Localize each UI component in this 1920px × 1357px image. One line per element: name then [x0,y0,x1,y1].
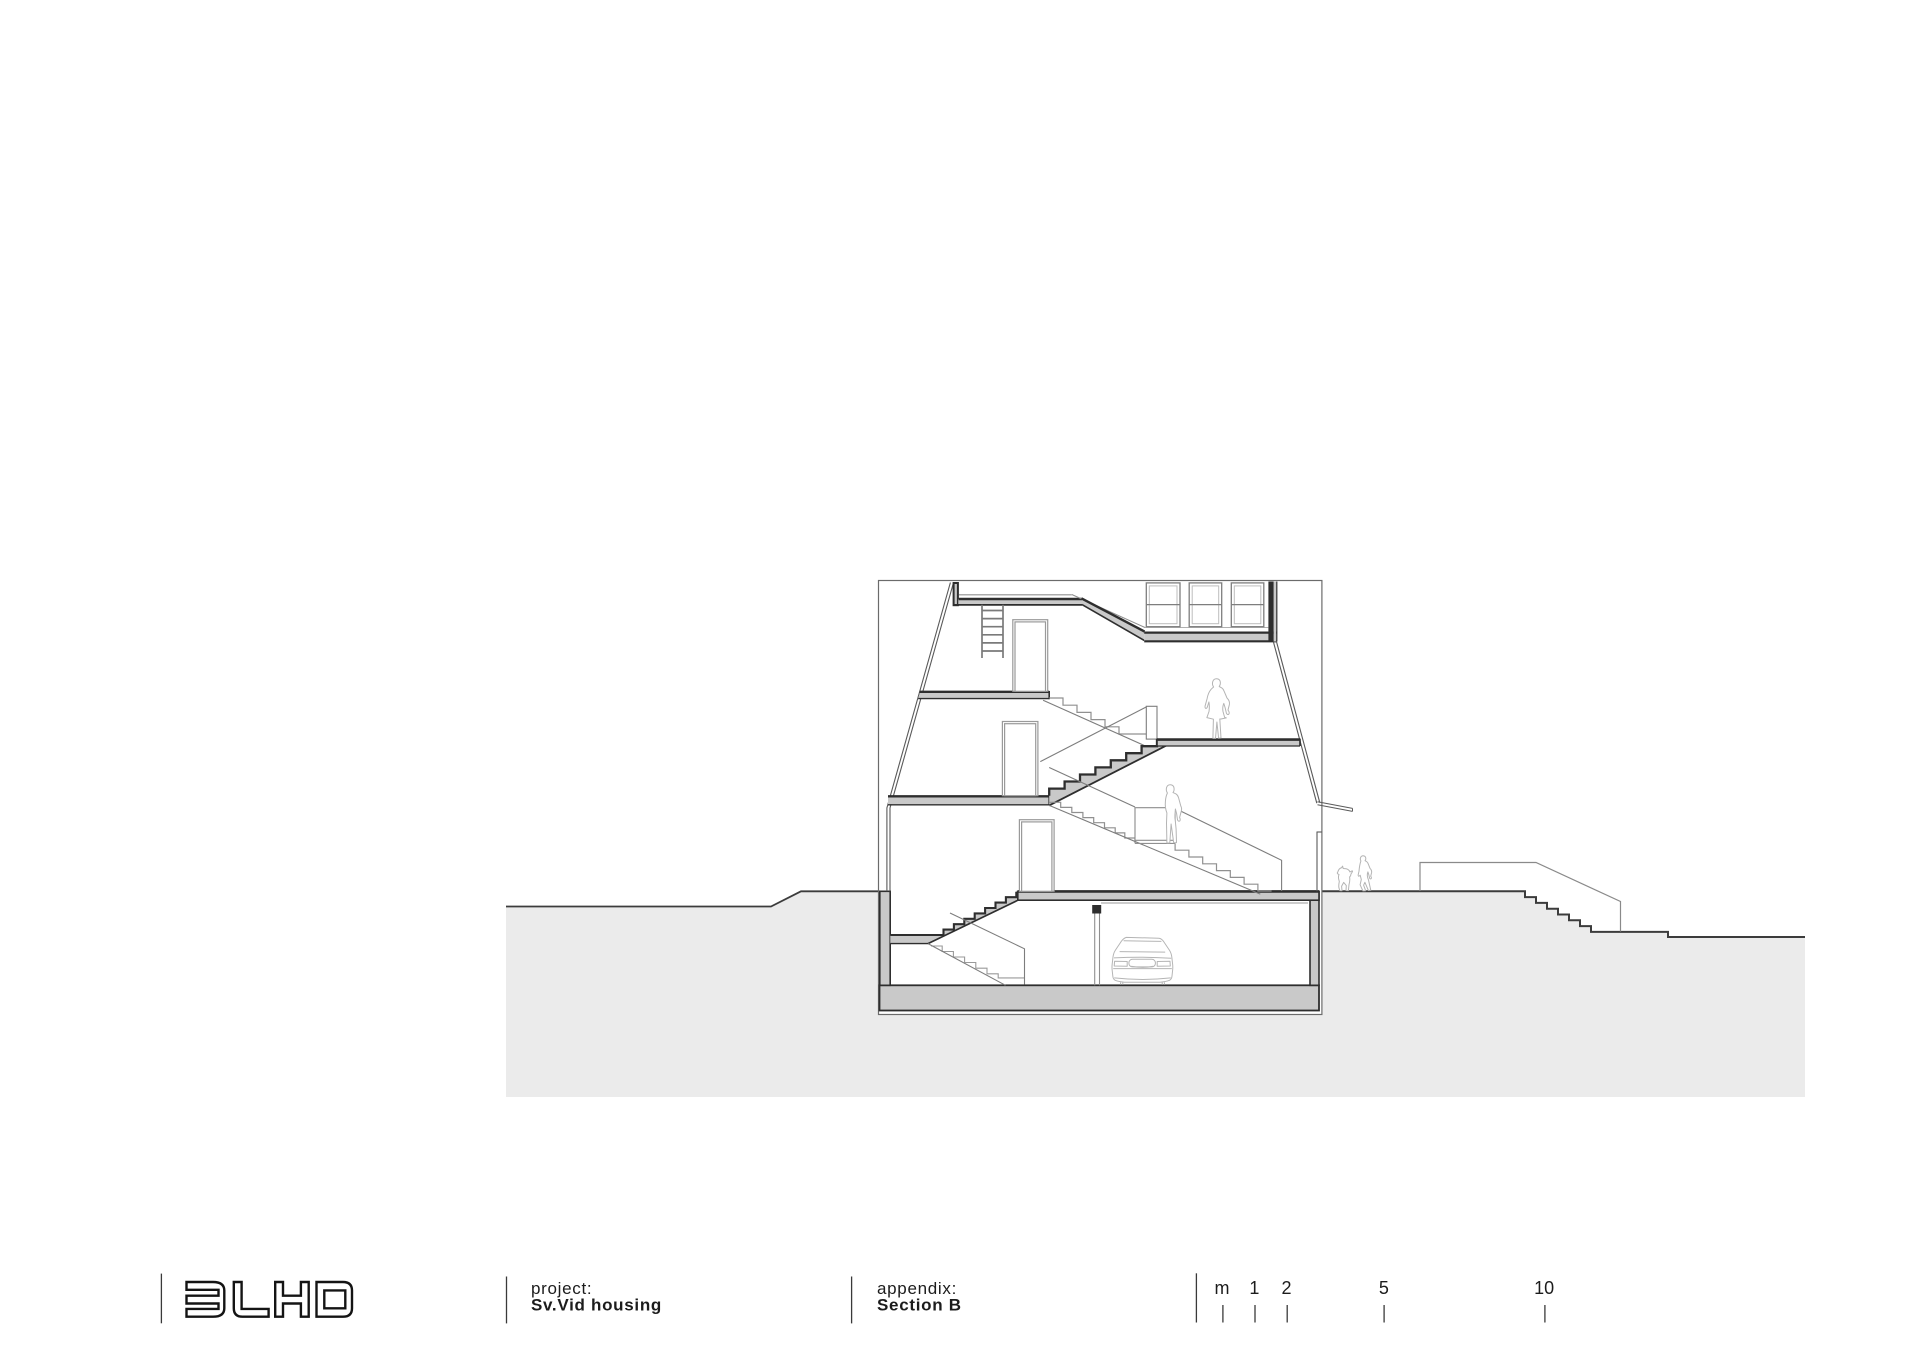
svg-text:1: 1 [1249,1278,1259,1298]
svg-text:5: 5 [1379,1278,1389,1298]
svg-text:Section B: Section B [877,1296,962,1315]
svg-text:Sv.Vid housing: Sv.Vid housing [531,1296,662,1315]
svg-text:2: 2 [1281,1278,1291,1298]
svg-text:10: 10 [1534,1278,1554,1298]
svg-text:m: m [1215,1278,1230,1298]
